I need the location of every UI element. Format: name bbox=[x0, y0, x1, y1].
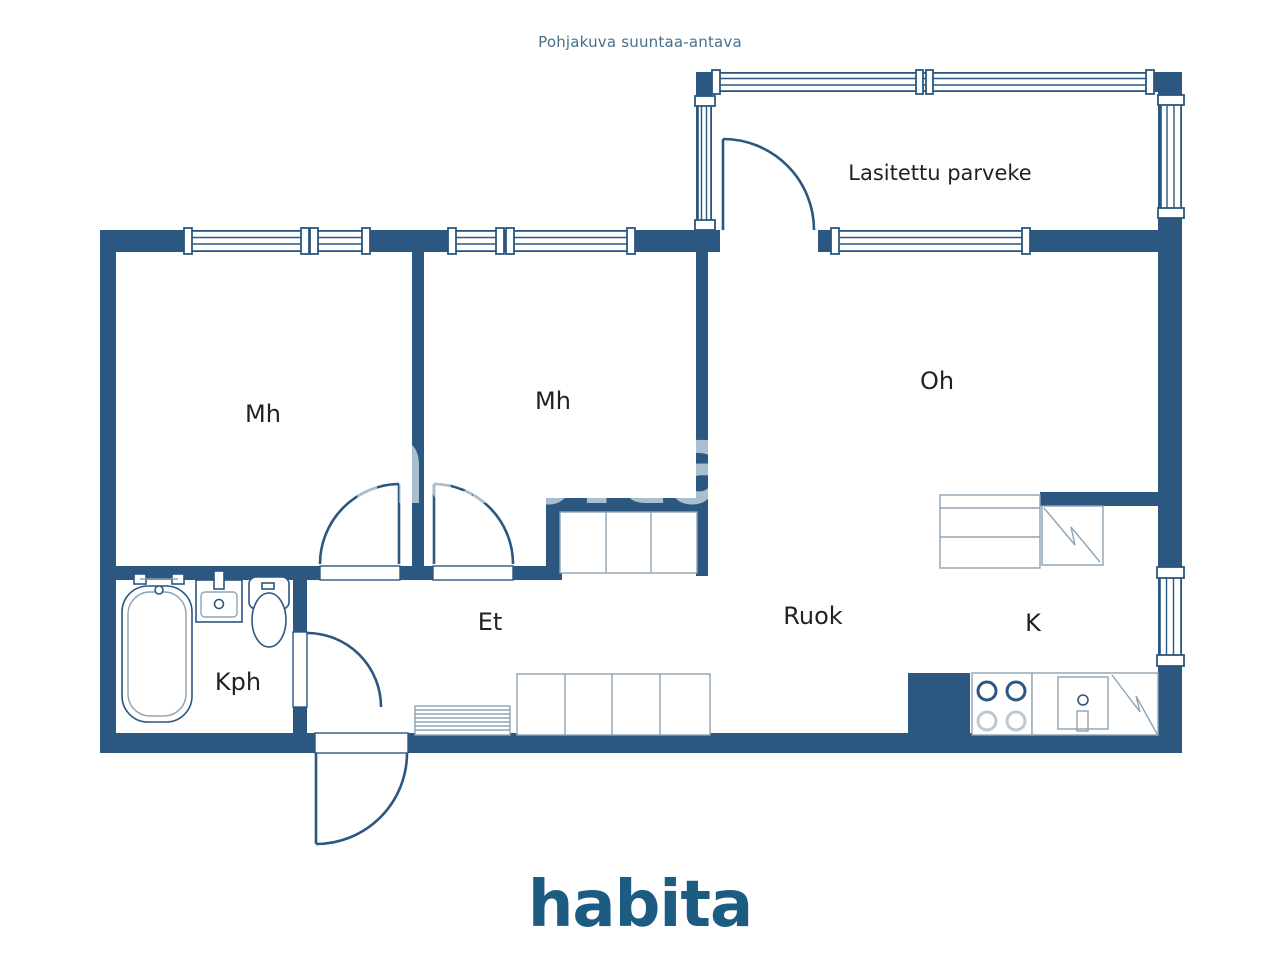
bathroom-door bbox=[307, 633, 381, 707]
entry-door-opening bbox=[315, 733, 408, 753]
bedroom1-window-2 bbox=[310, 228, 370, 254]
bedroom2-door-opening bbox=[433, 566, 513, 580]
toilet bbox=[249, 577, 289, 647]
bathtub bbox=[122, 574, 192, 722]
bedroom2-window-1 bbox=[448, 228, 504, 254]
entry-label: Et bbox=[478, 608, 503, 636]
bedroom2-window-2 bbox=[506, 228, 635, 254]
balcony-door-opening bbox=[720, 230, 818, 252]
floor-plan-page: Pohjakuva suuntaa-antava bbox=[0, 0, 1280, 960]
kitchen-label: K bbox=[1025, 609, 1042, 637]
bathroom-door-opening bbox=[293, 632, 307, 707]
balcony-top-glazing bbox=[712, 70, 1154, 94]
bedroom1-door-opening bbox=[320, 566, 400, 580]
left-wall bbox=[100, 230, 116, 753]
kitchen-divider-wall bbox=[1040, 492, 1158, 506]
hall-closet bbox=[560, 512, 697, 573]
closet-stub-wall bbox=[546, 498, 560, 580]
closet-top-wall bbox=[546, 498, 708, 512]
bedroom2-label: Mh bbox=[535, 387, 571, 415]
kitchen-counter-divider bbox=[940, 495, 1040, 568]
right-wall bbox=[1158, 230, 1182, 753]
bedroom1-window-1 bbox=[184, 228, 309, 254]
balcony-label: Lasitettu parveke bbox=[848, 161, 1031, 185]
bedroom2-door bbox=[434, 484, 513, 564]
living-room-label: Oh bbox=[920, 367, 954, 395]
kitchen-window bbox=[1157, 567, 1184, 666]
stove bbox=[972, 673, 1032, 735]
kitchen-fixtures bbox=[940, 495, 1158, 735]
living-room-window bbox=[831, 228, 1030, 254]
storage-units bbox=[415, 512, 710, 735]
bathroom-label: Kph bbox=[215, 668, 261, 696]
kitchen-sink bbox=[1032, 673, 1158, 735]
balcony-door bbox=[723, 139, 814, 230]
doormat bbox=[415, 706, 510, 735]
dining-label: Ruok bbox=[783, 602, 842, 630]
floor-plan-drawing: Lasitettu parveke Mh Mh Oh Et Ruok K Kph bbox=[0, 0, 1280, 960]
bedroom1-door bbox=[320, 484, 399, 564]
balcony-right-glazing bbox=[1158, 95, 1184, 218]
bottom-wall bbox=[100, 733, 1182, 753]
entry-closet bbox=[517, 674, 710, 735]
bedroom2-living-wall bbox=[696, 252, 708, 576]
bathroom-fixtures bbox=[122, 571, 289, 722]
kitchen-peninsula-wall bbox=[908, 673, 970, 753]
bedroom-divider-wall bbox=[412, 252, 424, 580]
refrigerator bbox=[1042, 506, 1103, 565]
bedroom1-label: Mh bbox=[245, 400, 281, 428]
brand-logo: habita bbox=[0, 868, 1280, 942]
entry-door bbox=[316, 753, 407, 844]
